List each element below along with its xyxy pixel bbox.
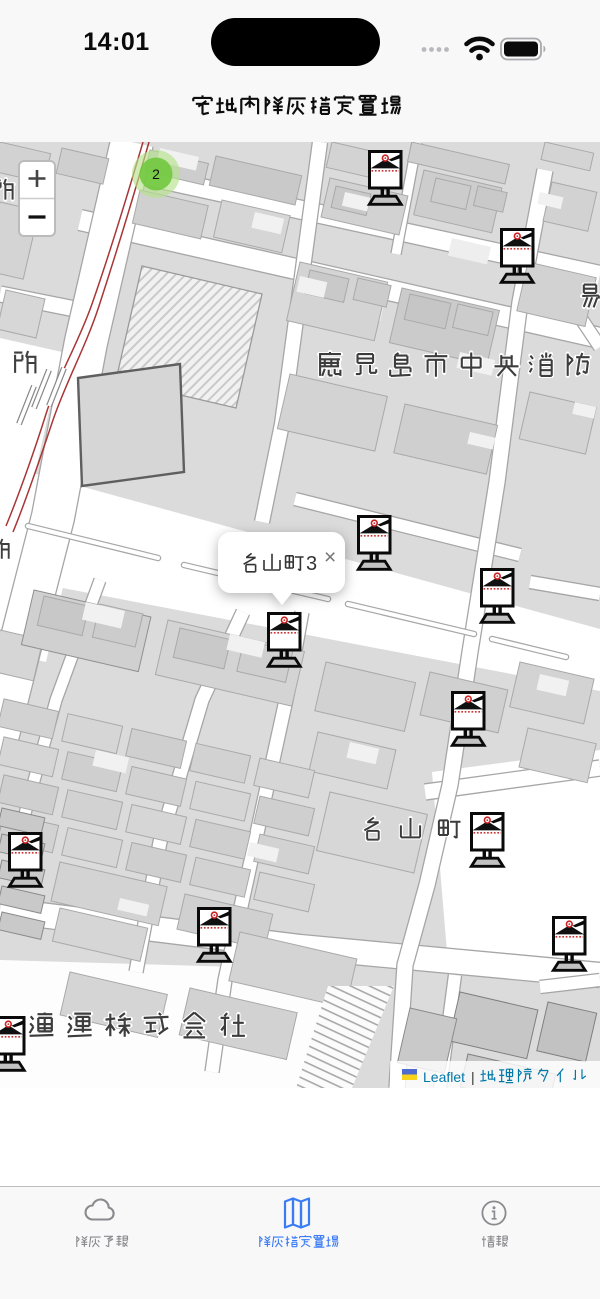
svg-text:3: 3	[306, 553, 317, 575]
svg-text:Leaflet: Leaflet	[423, 1069, 465, 1085]
svg-text:×: ×	[324, 546, 336, 569]
svg-text:|: |	[471, 1069, 475, 1085]
svg-text:2: 2	[152, 166, 160, 182]
